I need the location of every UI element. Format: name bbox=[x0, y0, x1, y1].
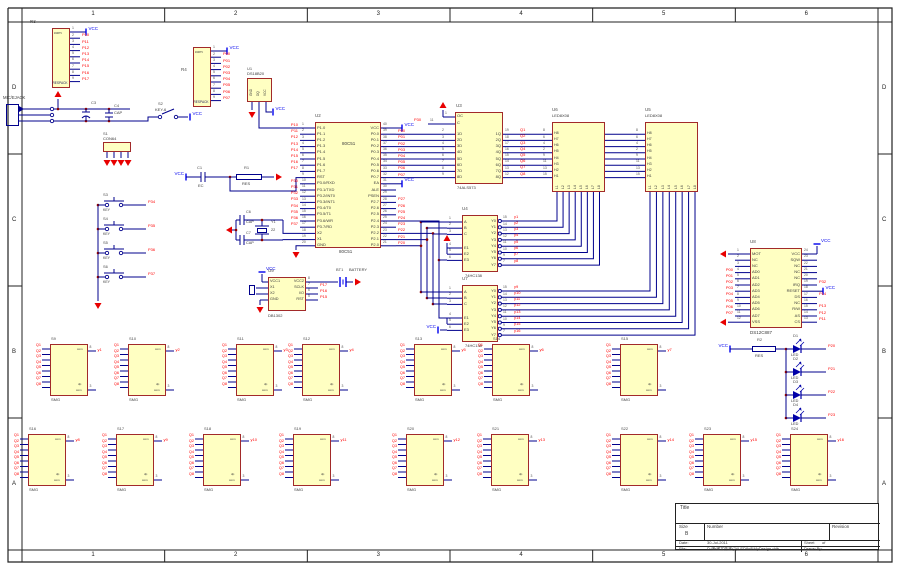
net-label: y1 bbox=[98, 348, 102, 352]
pin-name: L6 bbox=[681, 185, 684, 189]
pin-number: 6 bbox=[72, 58, 74, 62]
net-label: Q2 bbox=[114, 350, 119, 354]
pin-name: com bbox=[646, 479, 652, 482]
pin-name: E1 bbox=[464, 246, 469, 250]
pin-number: 3 bbox=[213, 59, 215, 63]
value-label: SMG bbox=[51, 398, 60, 402]
pin-number: 16 bbox=[302, 216, 306, 219]
resistor-R1[interactable] bbox=[236, 174, 262, 180]
terminal-circle[interactable] bbox=[105, 227, 108, 230]
net-label: P22 bbox=[828, 390, 835, 394]
net-label: Q1 bbox=[288, 344, 293, 348]
net-label: Q2 bbox=[606, 350, 611, 354]
respack-R4[interactable] bbox=[193, 47, 211, 107]
pin-number: 17 bbox=[505, 142, 509, 145]
pin-name: VSS bbox=[752, 320, 760, 324]
size-label: Size bbox=[679, 525, 688, 530]
value-label: KEY bbox=[103, 281, 110, 285]
net-label: Q7 bbox=[520, 165, 525, 169]
terminal-circle[interactable] bbox=[105, 203, 108, 206]
pin-number: 3 bbox=[660, 475, 662, 478]
ref-designator: C3 bbox=[91, 101, 96, 105]
connector-S1[interactable] bbox=[103, 142, 131, 152]
seven-segment-display[interactable] bbox=[293, 434, 331, 486]
pin-number: 1 bbox=[449, 287, 451, 290]
respack-R3[interactable] bbox=[52, 28, 70, 88]
net-label: P13 bbox=[82, 52, 89, 56]
pin-name: DS bbox=[794, 295, 800, 299]
pin-name: 3Q bbox=[496, 144, 501, 148]
wire bbox=[501, 192, 563, 227]
date-label: Date: bbox=[679, 541, 689, 545]
terminal-circle[interactable] bbox=[498, 321, 501, 324]
net-label: y14 bbox=[668, 438, 674, 442]
wire bbox=[501, 192, 557, 221]
net-label: Q7 bbox=[776, 467, 781, 471]
junction-dot bbox=[426, 238, 429, 241]
seven-segment-display[interactable] bbox=[203, 434, 241, 486]
terminal-circle[interactable] bbox=[158, 115, 161, 118]
seven-segment-display[interactable] bbox=[620, 344, 658, 396]
terminal-circle[interactable] bbox=[50, 107, 53, 110]
net-label: y9 bbox=[164, 438, 168, 442]
pin-name: dp bbox=[156, 383, 159, 386]
terminal-circle[interactable] bbox=[498, 315, 501, 318]
crystal-Y1[interactable] bbox=[257, 228, 267, 233]
pin-name: VCC bbox=[792, 252, 800, 256]
pin-name: Y0 bbox=[491, 219, 496, 223]
vcc-label: VCC bbox=[405, 123, 415, 128]
net-label: P07 bbox=[726, 311, 733, 315]
pin-name: dp bbox=[731, 473, 734, 476]
pin-number: 14 bbox=[503, 293, 507, 296]
vcc-label: VCC bbox=[89, 27, 99, 32]
net-label: Q7 bbox=[288, 377, 293, 381]
pin-number: 9 bbox=[543, 154, 545, 157]
seven-segment-display[interactable] bbox=[703, 434, 741, 486]
pin-number: 16 bbox=[505, 148, 509, 151]
vcc-label: VCC bbox=[718, 344, 728, 349]
led-ray-icon bbox=[800, 388, 804, 392]
pin-name: AD2 bbox=[752, 283, 760, 287]
net-label: y5 bbox=[462, 348, 466, 352]
component-U6[interactable] bbox=[552, 122, 605, 192]
pin-name: dp bbox=[519, 473, 522, 476]
net-label: P35 bbox=[148, 224, 155, 228]
pin-name: X2 bbox=[270, 292, 275, 296]
pin-number: 4 bbox=[442, 142, 444, 145]
net-label: Q2 bbox=[606, 440, 611, 444]
pin-number: 3 bbox=[90, 385, 92, 388]
net-label: Q3 bbox=[400, 355, 405, 359]
terminal-circle[interactable] bbox=[498, 296, 501, 299]
net-label: Q4 bbox=[36, 361, 41, 365]
pin-name: com bbox=[154, 389, 160, 392]
wire bbox=[501, 192, 682, 323]
net-label: P07 bbox=[223, 96, 230, 100]
net-label: P31 bbox=[291, 185, 298, 189]
value-label: RESPACK bbox=[53, 82, 68, 85]
pin-name: X1 bbox=[270, 286, 275, 290]
net-label: P15 bbox=[320, 295, 327, 299]
terminal-circle[interactable] bbox=[105, 275, 108, 278]
vcc-label: VCC bbox=[230, 46, 240, 51]
pin-number: 3 bbox=[449, 230, 451, 233]
pin-number: 3 bbox=[532, 385, 534, 388]
net-label: Q4 bbox=[222, 361, 227, 365]
seven-segment-display[interactable] bbox=[50, 344, 88, 396]
net-label: Q6 bbox=[606, 372, 611, 376]
value-label: KEY bbox=[103, 257, 110, 261]
pin-number: 22 bbox=[804, 262, 808, 265]
pin-number: 11 bbox=[503, 311, 507, 314]
value-label: SMG bbox=[129, 398, 138, 402]
terminal-circle[interactable] bbox=[498, 251, 501, 254]
pin-number: 3 bbox=[276, 385, 278, 388]
pin-number: 6 bbox=[213, 77, 215, 81]
pin-name: com bbox=[817, 438, 823, 441]
pin-name: VCC2 bbox=[294, 280, 304, 284]
net-label: Q7 bbox=[114, 377, 119, 381]
pin-name: 5D bbox=[457, 157, 462, 161]
value-label: SMG bbox=[621, 398, 630, 402]
led-diode-icon[interactable] bbox=[793, 414, 801, 422]
pin-name: P2.1 bbox=[371, 237, 379, 241]
net-label: Q6 bbox=[222, 372, 227, 376]
seven-segment-display[interactable] bbox=[236, 344, 274, 396]
border-column-label: 4 bbox=[519, 552, 522, 558]
pin-number: 11 bbox=[430, 119, 434, 122]
pin-name: SQW bbox=[790, 258, 800, 262]
net-label: Q4 bbox=[400, 361, 405, 365]
pin-name: P0.3 bbox=[371, 150, 379, 154]
seven-segment-display[interactable] bbox=[28, 434, 66, 486]
value-label: LED8X08 bbox=[645, 114, 662, 118]
pin-name: RESET bbox=[787, 289, 800, 293]
terminal-circle[interactable] bbox=[498, 327, 501, 330]
pin-name: CS bbox=[794, 320, 800, 324]
value-label: SMG bbox=[29, 488, 38, 492]
net-label: P16 bbox=[320, 289, 327, 293]
pin-number: 3 bbox=[68, 475, 70, 478]
net-label: Q8 bbox=[606, 473, 611, 477]
net-label: P01 bbox=[726, 274, 733, 278]
pin-name: L1 bbox=[649, 185, 652, 189]
net-label: Q1 bbox=[114, 344, 119, 348]
net-label: Q2 bbox=[477, 440, 482, 444]
pin-name: com bbox=[646, 389, 652, 392]
net-label: P16 bbox=[291, 160, 298, 164]
led-diode-icon[interactable] bbox=[793, 391, 801, 399]
pin-name: com bbox=[319, 479, 325, 482]
pin-name: P3.1/TXD bbox=[317, 188, 334, 192]
pin-number: 4 bbox=[213, 65, 215, 69]
pin-name: P3.0/RXD bbox=[317, 181, 335, 185]
net-label: Q7 bbox=[689, 467, 694, 471]
terminal-circle[interactable] bbox=[105, 251, 108, 254]
net-label: Q1 bbox=[222, 344, 227, 348]
value-label: 74ALS573 bbox=[457, 186, 476, 190]
border-column-label: 2 bbox=[234, 552, 237, 558]
pin-number: 8 bbox=[454, 346, 456, 349]
terminal-circle[interactable] bbox=[50, 113, 53, 116]
net-label: P12 bbox=[291, 135, 298, 139]
ref-designator: S13 bbox=[415, 337, 422, 341]
pin-number: 34 bbox=[383, 160, 387, 163]
net-label: P25 bbox=[398, 210, 405, 214]
net-label: Q5 bbox=[392, 456, 397, 460]
pin-name: DQ bbox=[257, 91, 260, 96]
seven-segment-display[interactable] bbox=[790, 434, 828, 486]
net-label: Q6 bbox=[689, 462, 694, 466]
ground-arrow-icon bbox=[444, 235, 451, 241]
pin-name: Y7 bbox=[491, 263, 496, 267]
terminal-circle[interactable] bbox=[498, 308, 501, 311]
net-label: P11 bbox=[291, 129, 298, 133]
pin-name: 2D bbox=[457, 138, 462, 142]
net-label: Q6 bbox=[114, 372, 119, 376]
terminal-circle[interactable] bbox=[119, 227, 122, 230]
net-label: Q6 bbox=[478, 372, 483, 376]
ref-designator: D4 bbox=[793, 403, 798, 407]
pin-name: 4Q bbox=[496, 150, 501, 154]
net-label: Q7 bbox=[477, 467, 482, 471]
net-label: Q7 bbox=[606, 467, 611, 471]
net-label: Q1 bbox=[400, 344, 405, 348]
pin-number: 8 bbox=[156, 436, 158, 439]
audio-jack[interactable] bbox=[6, 104, 19, 126]
revision-label: Revision bbox=[832, 525, 849, 530]
resistor-R2[interactable] bbox=[752, 346, 776, 352]
pin-name: VCC bbox=[371, 126, 379, 130]
ref-designator: S9 bbox=[51, 337, 56, 341]
pin-number: 18 bbox=[505, 136, 509, 139]
pin-number: 3 bbox=[531, 475, 533, 478]
net-label: P17 bbox=[82, 77, 89, 81]
pin-name: C bbox=[457, 121, 460, 125]
seven-segment-display[interactable] bbox=[492, 344, 530, 396]
net-label: Q6 bbox=[14, 462, 19, 466]
net-label: P17 bbox=[291, 166, 298, 170]
seven-segment-display[interactable] bbox=[414, 344, 452, 396]
pin-name: Y3 bbox=[491, 238, 496, 242]
led-diode-icon[interactable] bbox=[793, 345, 801, 353]
net-label: P35 bbox=[291, 210, 298, 214]
pin-name: A bbox=[464, 220, 467, 224]
pin-number: 5 bbox=[213, 71, 215, 75]
net-label: Q3 bbox=[14, 445, 19, 449]
pin-name: P3.7/RD bbox=[317, 225, 332, 229]
net-label: Q8 bbox=[400, 383, 405, 387]
net-label: Q8 bbox=[114, 383, 119, 387]
terminal-circle[interactable] bbox=[498, 264, 501, 267]
pin-name: OC bbox=[457, 114, 463, 118]
pin-name: AD6 bbox=[752, 307, 760, 311]
pin-name: 4D bbox=[457, 150, 462, 154]
pin-number: 11 bbox=[737, 311, 741, 314]
pin-name: 6D bbox=[457, 163, 462, 167]
terminal-circle[interactable] bbox=[498, 219, 501, 222]
pin-name: ALE bbox=[371, 188, 379, 192]
pin-name: Y4 bbox=[491, 314, 496, 318]
pin-number: 26 bbox=[383, 210, 387, 213]
pin-number: 8 bbox=[830, 436, 832, 439]
net-label: P13 bbox=[819, 304, 826, 308]
seven-segment-display[interactable] bbox=[128, 344, 166, 396]
pin-number: 3 bbox=[72, 40, 74, 44]
vcc-label: VCC bbox=[276, 107, 286, 112]
net-label: Q4 bbox=[392, 451, 397, 455]
pin-number: 21 bbox=[383, 241, 387, 244]
ground-arrow-icon bbox=[257, 307, 264, 313]
pin-name: NC bbox=[794, 276, 800, 280]
ref-designator: C6 bbox=[246, 211, 251, 215]
value-label: SMG bbox=[237, 398, 246, 402]
wire bbox=[501, 192, 575, 240]
pin-number: 25 bbox=[383, 216, 387, 219]
terminal-circle[interactable] bbox=[498, 289, 501, 292]
pin-number: 13 bbox=[804, 317, 808, 320]
seven-segment-display[interactable] bbox=[620, 434, 658, 486]
pin-number: 7 bbox=[302, 160, 304, 163]
net-label: Q7 bbox=[102, 467, 107, 471]
terminal-circle[interactable] bbox=[498, 302, 501, 305]
pin-number: 12 bbox=[737, 317, 741, 320]
net-label: Q1 bbox=[14, 434, 19, 438]
terminal-circle[interactable] bbox=[119, 251, 122, 254]
net-label: Q5 bbox=[400, 366, 405, 370]
net-label: P06 bbox=[223, 90, 230, 94]
pin-name: Y3 bbox=[491, 308, 496, 312]
net-label: P00 bbox=[223, 52, 230, 56]
pin-name: RST bbox=[296, 298, 304, 302]
border-row-label: A bbox=[12, 481, 16, 487]
pin-number: 35 bbox=[383, 154, 387, 157]
pin-number: 39 bbox=[383, 129, 387, 132]
pin-name: GND bbox=[317, 243, 326, 247]
net-label: P01 bbox=[223, 59, 230, 63]
terminal-circle[interactable] bbox=[498, 245, 501, 248]
pin-name: H5 bbox=[554, 150, 559, 154]
ground-arrow-icon bbox=[55, 91, 62, 97]
pin-number: 2 bbox=[449, 223, 451, 226]
net-label: Q6 bbox=[400, 372, 405, 376]
pin-number: 15 bbox=[503, 286, 507, 289]
net-label: P21 bbox=[398, 235, 405, 239]
net-label: Q8 bbox=[520, 172, 525, 176]
net-label: P30 bbox=[414, 118, 421, 122]
pin-name: dp bbox=[520, 383, 523, 386]
pin-number: 13 bbox=[302, 198, 306, 201]
junction-dot bbox=[261, 219, 264, 222]
terminal-circle[interactable] bbox=[498, 238, 501, 241]
net-label: P14 bbox=[82, 58, 89, 62]
led-ray-icon bbox=[800, 365, 804, 369]
pin-number: 2 bbox=[302, 129, 304, 132]
pin-name: com bbox=[143, 438, 149, 441]
pin-name: L7 bbox=[688, 185, 691, 189]
pin-number: 17 bbox=[804, 293, 808, 296]
pin-number: 8 bbox=[308, 277, 310, 280]
seven-segment-display[interactable] bbox=[302, 344, 340, 396]
pin-number: 15 bbox=[302, 210, 306, 213]
pin-number: 13 bbox=[636, 167, 640, 170]
pin-number: 6 bbox=[302, 154, 304, 157]
ref-designator: S19 bbox=[294, 427, 301, 431]
pin-number: 20 bbox=[804, 274, 808, 277]
terminal-circle[interactable] bbox=[119, 203, 122, 206]
value-label: SMG bbox=[492, 488, 501, 492]
pin-number: 22 bbox=[383, 235, 387, 238]
pin-name: VCC bbox=[264, 89, 267, 96]
pin-number: 7 bbox=[503, 260, 505, 263]
pin-number: 8 bbox=[213, 90, 215, 94]
crystal-rtc[interactable] bbox=[249, 285, 255, 295]
terminal-circle[interactable] bbox=[498, 257, 501, 260]
pin-name: 7Q bbox=[496, 169, 501, 173]
net-label: Q1 bbox=[279, 434, 284, 438]
pin-number: 10 bbox=[503, 248, 507, 251]
pin-name: H6 bbox=[647, 144, 652, 148]
led-ray-icon bbox=[796, 409, 800, 413]
terminal-circle[interactable] bbox=[50, 119, 53, 122]
component-U5[interactable] bbox=[645, 122, 698, 192]
terminal-circle[interactable] bbox=[174, 115, 177, 118]
pin-name: Y1 bbox=[491, 295, 496, 299]
pin-number: 6 bbox=[737, 280, 739, 283]
ref-designator: S5 bbox=[103, 241, 108, 245]
net-label: Q2 bbox=[776, 440, 781, 444]
terminal-circle[interactable] bbox=[498, 226, 501, 229]
border-row-label: C bbox=[882, 217, 886, 223]
net-label: Q5 bbox=[776, 456, 781, 460]
pin-number: 15 bbox=[505, 154, 509, 157]
net-label: y11 bbox=[341, 438, 347, 442]
seven-segment-display[interactable] bbox=[116, 434, 154, 486]
terminal-circle[interactable] bbox=[119, 275, 122, 278]
net-label: P23 bbox=[828, 413, 835, 417]
junction-dot bbox=[420, 245, 423, 248]
net-label: P24 bbox=[398, 216, 405, 220]
net-label: Q5 bbox=[114, 366, 119, 370]
pin-number: 28 bbox=[383, 198, 387, 201]
pin-name: com bbox=[320, 438, 326, 441]
led-diode-icon[interactable] bbox=[793, 368, 801, 376]
border-column-label: 6 bbox=[805, 552, 808, 558]
net-label: P36 bbox=[148, 248, 155, 252]
pin-name: dp bbox=[330, 383, 333, 386]
pin-name: P0.7 bbox=[371, 175, 379, 179]
pin-number: 9 bbox=[636, 154, 638, 157]
led-ray-icon bbox=[800, 342, 804, 346]
net-label: y10 bbox=[514, 291, 520, 295]
net-label: y1 bbox=[514, 215, 518, 219]
net-label: Q3 bbox=[478, 355, 483, 359]
seven-segment-display[interactable] bbox=[491, 434, 529, 486]
pin-number: 3 bbox=[449, 300, 451, 303]
pin-name: P2.3 bbox=[371, 225, 379, 229]
pin-number: 3 bbox=[342, 385, 344, 388]
pin-number: 6 bbox=[636, 136, 638, 139]
value-label: KEY-6 bbox=[155, 108, 166, 112]
pin-name: 2Q bbox=[496, 138, 501, 142]
pin-name: L8 bbox=[694, 185, 697, 189]
terminal-circle[interactable] bbox=[498, 232, 501, 235]
value-label: 22 bbox=[271, 229, 275, 233]
pin-name: E3 bbox=[464, 258, 469, 262]
pin-number: 12 bbox=[503, 235, 507, 238]
seven-segment-display[interactable] bbox=[406, 434, 444, 486]
